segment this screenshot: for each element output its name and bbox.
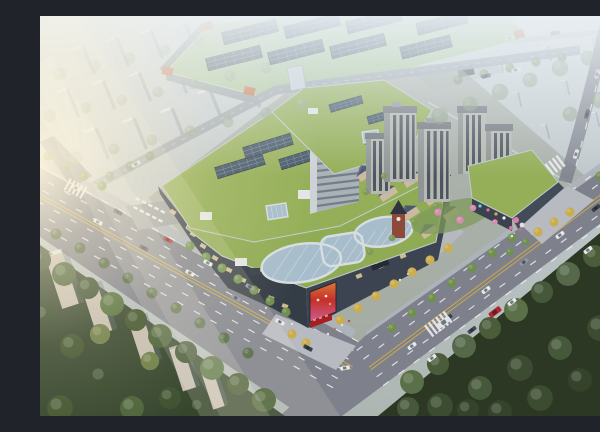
- sun-flare: [40, 16, 600, 416]
- rendering-canvas: [40, 16, 600, 416]
- aerial-rendering: [40, 16, 600, 416]
